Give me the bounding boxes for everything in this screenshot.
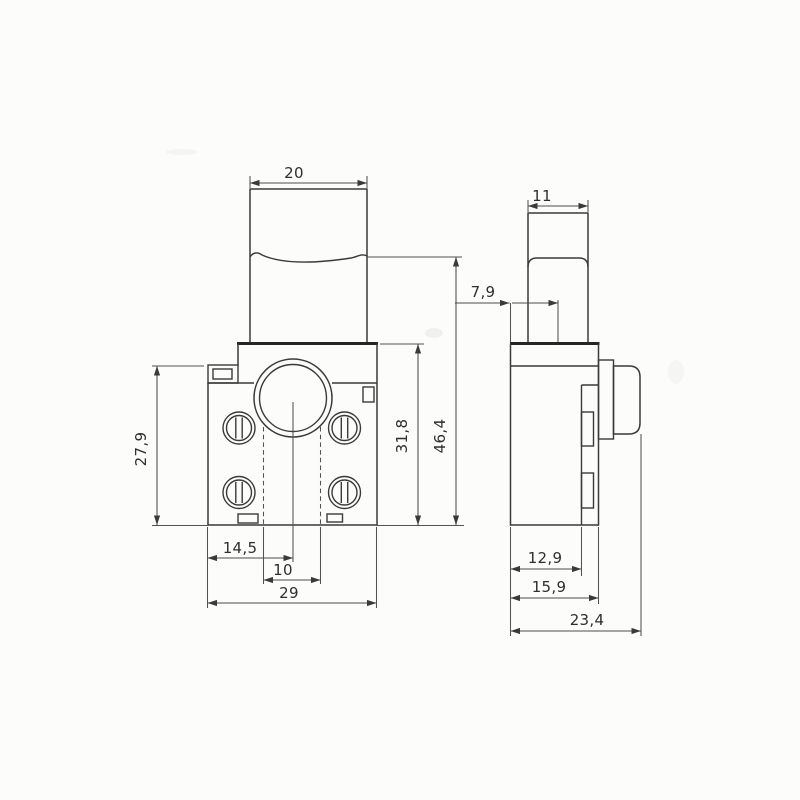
dimension-label: 10 xyxy=(273,561,293,579)
front-view xyxy=(208,189,378,562)
dimension-label: 11 xyxy=(532,187,552,205)
dimension-button-width: 11 xyxy=(528,187,588,212)
screw-head-inner xyxy=(227,480,252,505)
dimension-label: 27,9 xyxy=(132,432,150,467)
dimension-label: 20 xyxy=(284,164,304,182)
lock-button-cap xyxy=(614,366,641,434)
dimension-overall-depth: 23,4 xyxy=(511,611,642,631)
dimension-label: 7,9 xyxy=(471,283,496,301)
dimension-body-height: 31,8 xyxy=(380,344,424,525)
mount-tab-hole xyxy=(213,369,232,379)
screw-terminal-top-left xyxy=(223,412,255,444)
scan-smudge xyxy=(166,149,198,155)
scan-smudge xyxy=(425,328,443,338)
screw-head xyxy=(223,412,255,444)
screw-terminal-bottom-right xyxy=(329,477,361,509)
dimension-center-offset: 14,5 xyxy=(208,539,294,558)
dimension-label: 29 xyxy=(279,584,299,602)
dimension-label: 12,9 xyxy=(528,549,563,567)
screw-head xyxy=(329,412,361,444)
dimension-contact-depth: 12,9 xyxy=(511,549,582,569)
dimension-body-width: 29 xyxy=(208,584,377,603)
dimension-label: 31,8 xyxy=(393,419,411,454)
latch-slot xyxy=(363,387,374,402)
side-view xyxy=(510,213,640,525)
dimension-trigger-width: 20 xyxy=(250,164,367,188)
trigger-face-curve xyxy=(250,253,367,262)
dimension-body-depth: 15,9 xyxy=(511,578,599,598)
trigger-step xyxy=(528,258,588,267)
screw-head-inner xyxy=(332,416,357,441)
screw-terminal-top-right xyxy=(329,412,361,444)
screw-head-inner xyxy=(227,416,252,441)
screw-head xyxy=(223,477,255,509)
drawing-sheet: 20 27,9 31,8 46,4 14,5 xyxy=(0,0,800,800)
trigger-outline xyxy=(250,189,367,343)
screw-head xyxy=(329,477,361,509)
dimension-plunger-offset: 7,9 xyxy=(455,283,558,342)
dimension-label: 14,5 xyxy=(223,539,258,557)
technical-drawing: 20 27,9 31,8 46,4 14,5 xyxy=(0,0,800,800)
dimension-left-body-height: 27,9 xyxy=(132,366,204,525)
dimension-overall-height: 46,4 xyxy=(367,257,462,525)
terminal-slot-left xyxy=(238,514,258,523)
dimension-label: 46,4 xyxy=(431,419,449,454)
screw-terminal-bottom-left xyxy=(223,477,255,509)
dimension-contact-pitch: 10 xyxy=(264,561,321,580)
contact-block-upper xyxy=(582,412,594,446)
screw-head-inner xyxy=(332,480,357,505)
front-view-dimensions: 20 27,9 31,8 46,4 14,5 xyxy=(132,164,464,608)
lock-button-stem xyxy=(599,360,614,439)
dimension-label: 23,4 xyxy=(570,611,605,629)
dimension-label: 15,9 xyxy=(532,578,567,596)
contact-block-lower xyxy=(582,473,594,508)
scan-smudge xyxy=(668,360,684,384)
terminal-slot-right xyxy=(327,514,343,522)
